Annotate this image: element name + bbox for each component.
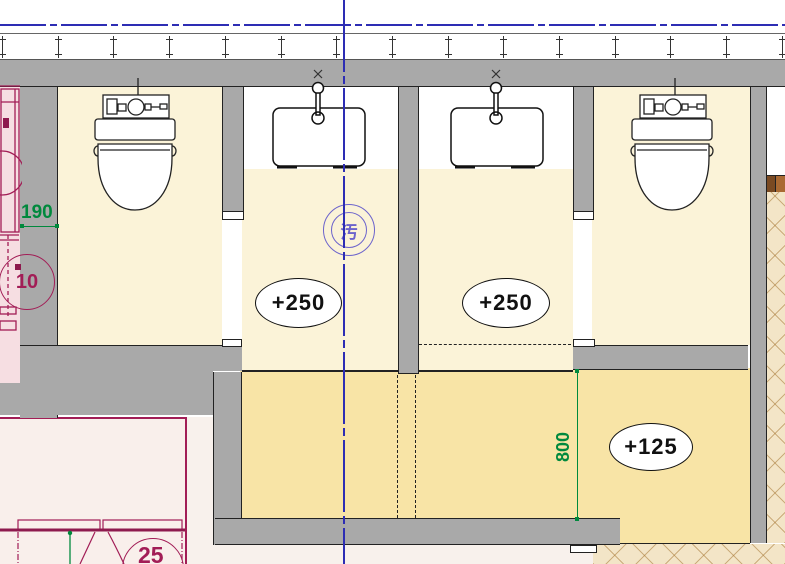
wall-tick-divider xyxy=(503,36,504,58)
dimension-800-text: 800 xyxy=(553,418,575,476)
right-room-bottom-wall xyxy=(573,345,748,370)
service-fixture-icon xyxy=(0,85,22,395)
wall-tick-divider xyxy=(58,36,59,58)
floor-level-text: +125 xyxy=(624,434,678,460)
lower-wall-a-notch xyxy=(222,339,242,347)
dimension-end-marker xyxy=(20,224,24,228)
dimension-end-marker xyxy=(55,224,59,228)
wall-tick-divider xyxy=(726,36,727,58)
drain-symbol-inner: 汚 xyxy=(331,212,367,248)
right-exterior-strip xyxy=(765,85,785,175)
wall-tick-divider xyxy=(281,36,282,58)
wall-tick-divider xyxy=(615,36,616,58)
grid-centerline-horizontal xyxy=(0,24,785,26)
right-wall xyxy=(750,85,767,543)
dimension-end-marker xyxy=(575,517,579,521)
dimension-end-marker xyxy=(575,369,579,373)
wall-tick-divider xyxy=(559,36,560,58)
partition-wall-1 xyxy=(222,85,244,213)
wash-alcove-right-floor xyxy=(417,169,573,372)
stall-partition-detail xyxy=(0,512,215,564)
opening-dashed-line xyxy=(419,344,571,345)
floor-level-label: +250 xyxy=(255,278,342,328)
bottom-strip xyxy=(185,543,593,564)
right-tile-hatch xyxy=(765,192,785,543)
floor-level-text: +250 xyxy=(272,290,326,316)
wall-tick-divider xyxy=(2,36,3,58)
corridor-bottom-wall xyxy=(215,518,620,545)
balloon-tag-text: 25 xyxy=(138,542,164,564)
toilet-icon xyxy=(622,78,722,218)
wash-alcove-left-floor xyxy=(242,169,398,372)
overhead-dashed-line xyxy=(397,375,398,518)
corridor-bottom-wall-notch xyxy=(570,545,597,553)
floor-plan-canvas: 汚 +250 +250 +125 190 800 10 25 xyxy=(0,0,785,564)
wall-tick-band xyxy=(0,36,785,58)
wall-tick-divider xyxy=(392,36,393,58)
wall-tick-divider xyxy=(336,36,337,58)
wall-tick-divider xyxy=(225,36,226,58)
partition-wall-2-end-cap xyxy=(573,211,594,220)
wall-tick-divider xyxy=(670,36,671,58)
partition-wall-1-end-cap xyxy=(222,211,244,220)
wall-tick-divider xyxy=(782,36,783,58)
lower-wall-b xyxy=(20,370,213,415)
lower-wall-a xyxy=(20,345,242,371)
floor-level-label: +250 xyxy=(462,278,550,328)
dimension-800-line xyxy=(577,371,578,519)
dimension-190-text: 190 xyxy=(21,202,53,224)
floor-level-label: +125 xyxy=(609,423,693,471)
wall-tick-divider xyxy=(448,36,449,58)
right-room-bottom-wall-notch xyxy=(573,339,595,347)
balloon-tag-10: 10 xyxy=(0,254,55,310)
partition-wall-2 xyxy=(573,85,594,213)
sink-icon xyxy=(441,60,551,170)
overhead-dashed-line xyxy=(415,375,416,518)
sink-icon xyxy=(263,60,373,170)
wall-tick-divider xyxy=(113,36,114,58)
dimension-190-line xyxy=(22,226,57,227)
bottom-right-tile-hatch xyxy=(593,544,785,564)
wall-tick-divider xyxy=(169,36,170,58)
toilet-icon xyxy=(85,78,185,218)
balloon-tag-text: 10 xyxy=(16,271,38,294)
floor-level-text: +250 xyxy=(479,290,533,316)
partition-wall-center xyxy=(398,85,419,374)
grid-centerline-vertical xyxy=(343,0,345,564)
